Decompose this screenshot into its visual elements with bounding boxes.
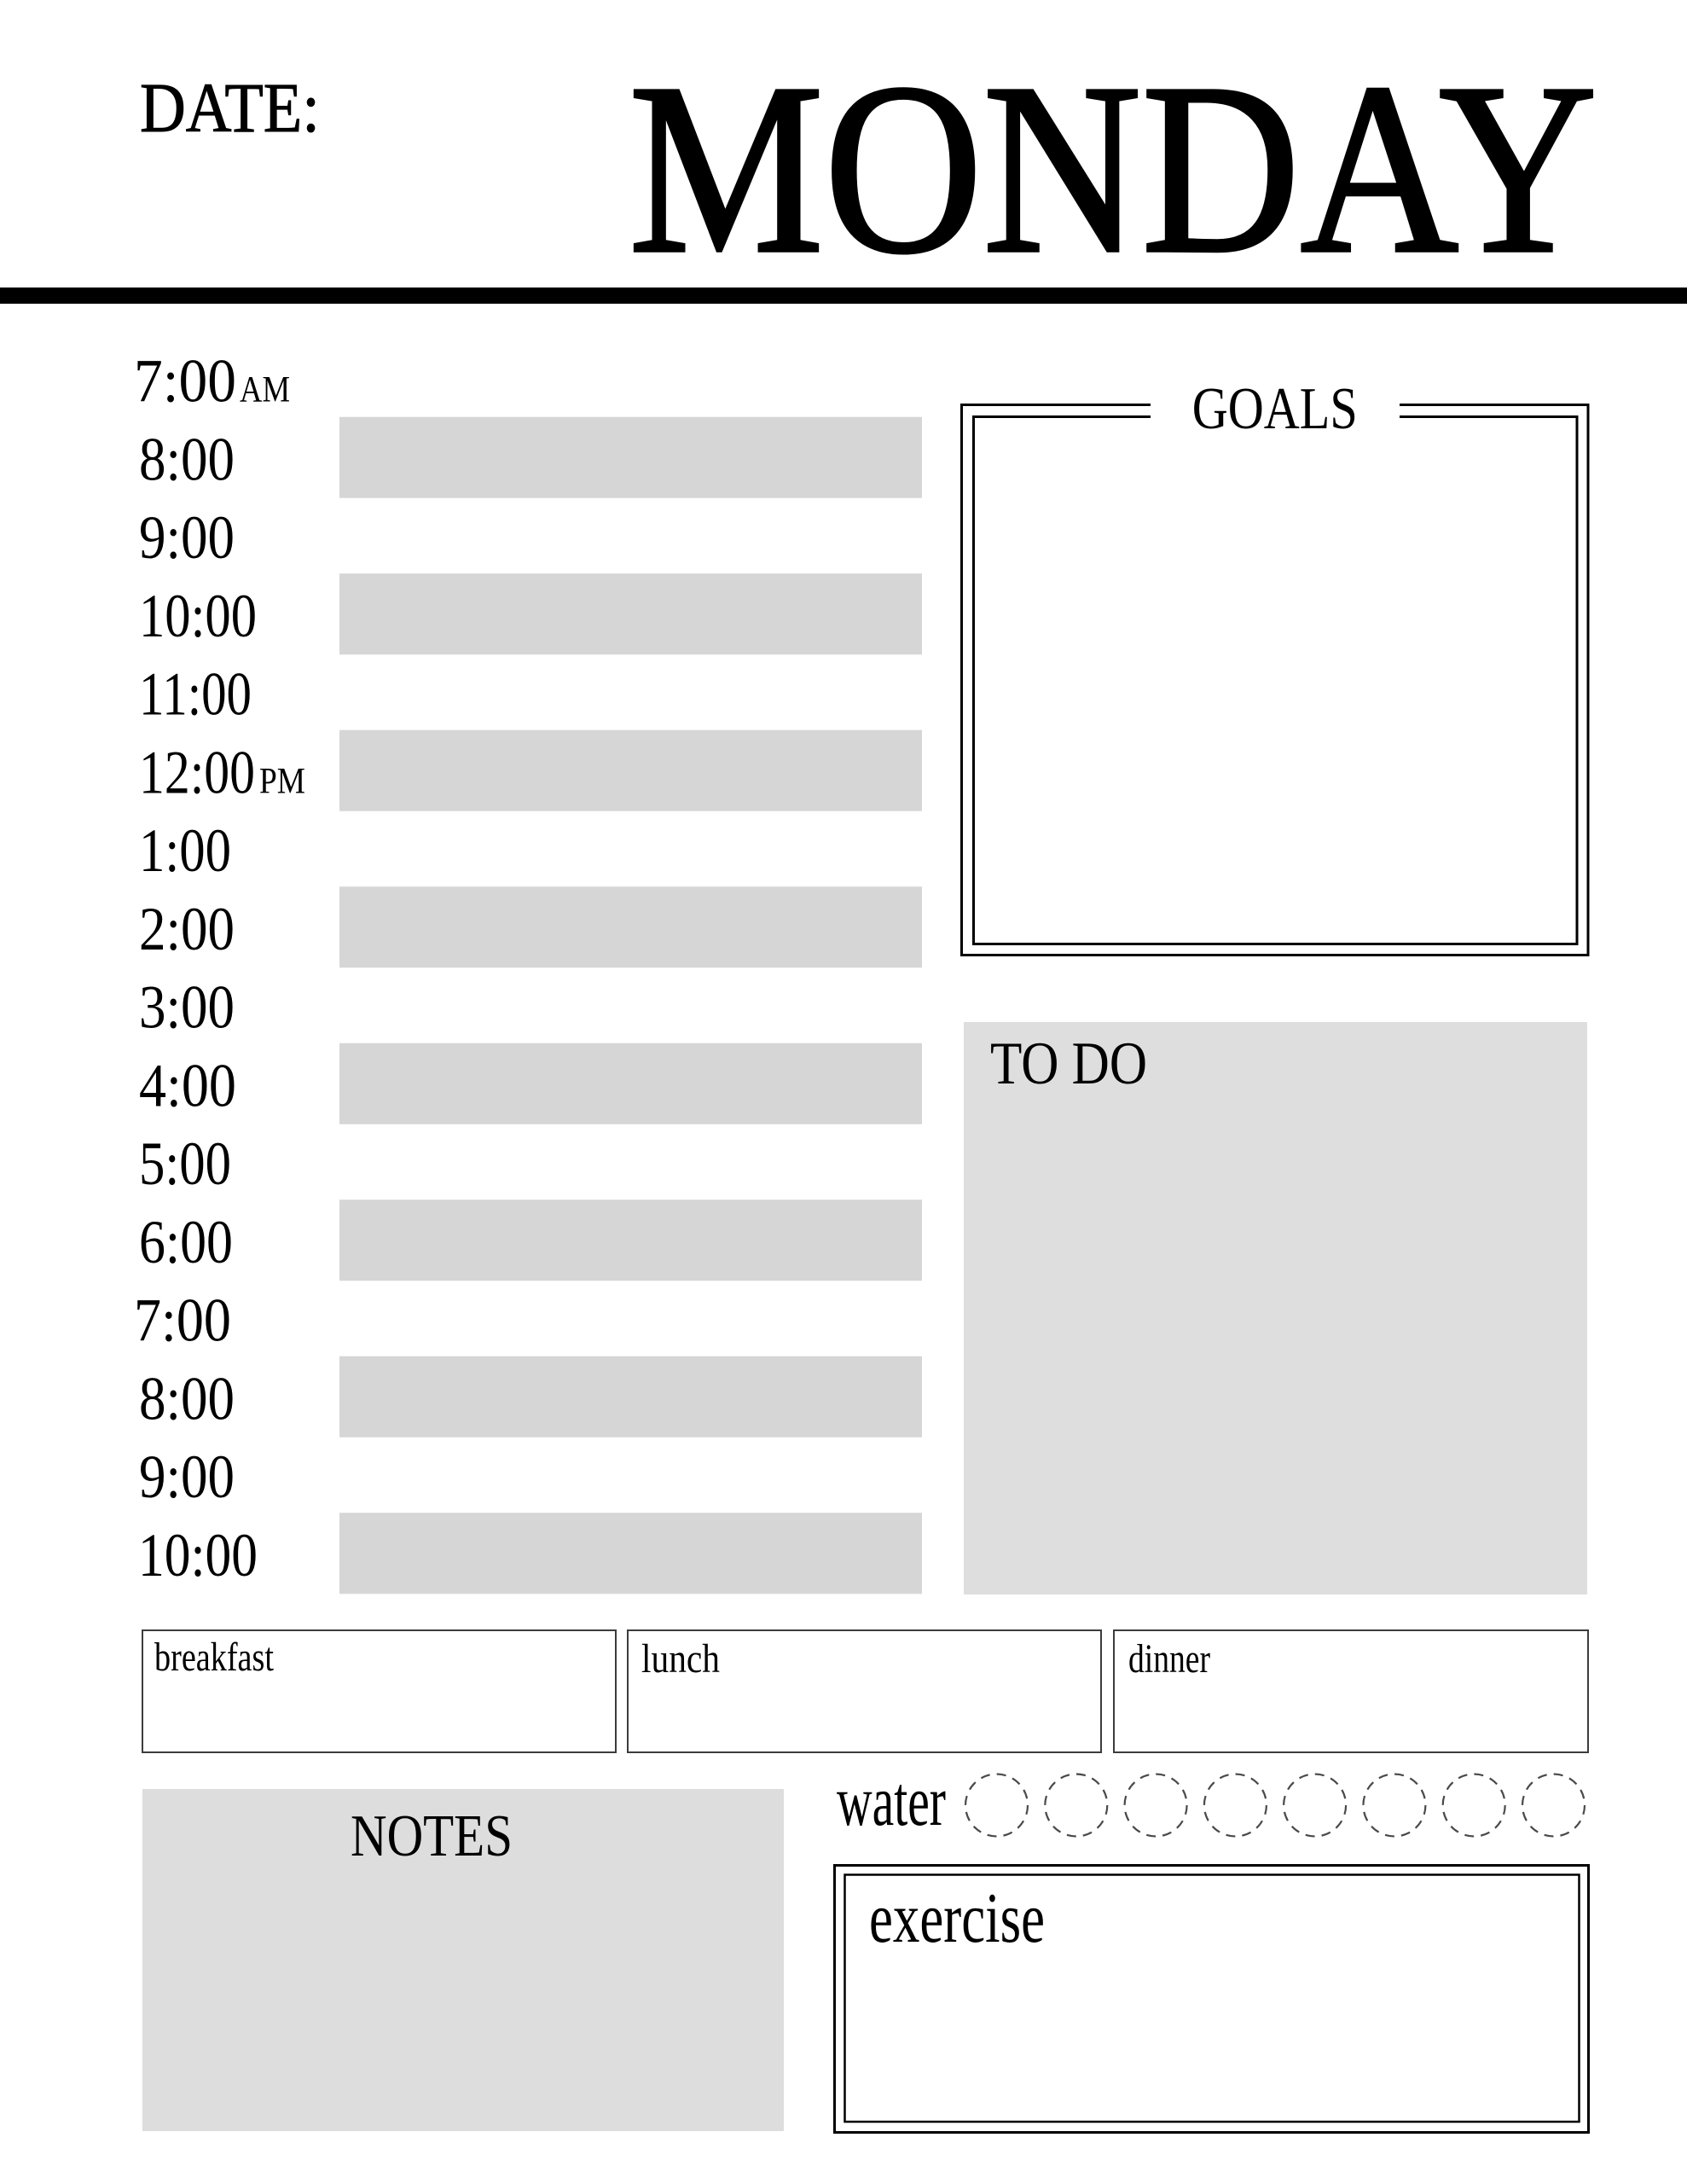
svg-text:8:00: 8:00 bbox=[139, 1364, 235, 1432]
svg-text:7:00: 7:00 bbox=[134, 347, 236, 415]
svg-text:5:00: 5:00 bbox=[139, 1130, 231, 1198]
svg-text:12:00: 12:00 bbox=[139, 738, 255, 806]
svg-text:DATE:: DATE: bbox=[140, 68, 320, 147]
svg-text:PM: PM bbox=[259, 761, 305, 801]
svg-text:TO DO: TO DO bbox=[990, 1031, 1147, 1097]
svg-text:lunch: lunch bbox=[641, 1636, 720, 1682]
svg-text:MONDAY: MONDAY bbox=[629, 33, 1597, 305]
svg-text:dinner: dinner bbox=[1128, 1636, 1210, 1682]
svg-text:4:00: 4:00 bbox=[139, 1051, 236, 1119]
svg-text:NOTES: NOTES bbox=[351, 1804, 513, 1869]
svg-text:3:00: 3:00 bbox=[139, 973, 235, 1042]
svg-text:exercise: exercise bbox=[869, 1879, 1045, 1958]
svg-text:water: water bbox=[837, 1762, 946, 1841]
svg-text:10:00: 10:00 bbox=[138, 1521, 258, 1589]
svg-text:1:00: 1:00 bbox=[139, 816, 231, 885]
svg-text:6:00: 6:00 bbox=[139, 1208, 233, 1276]
svg-text:8:00: 8:00 bbox=[139, 425, 235, 493]
svg-text:GOALS: GOALS bbox=[1192, 376, 1358, 442]
svg-text:10:00: 10:00 bbox=[139, 582, 257, 650]
svg-text:2:00: 2:00 bbox=[139, 895, 235, 963]
svg-text:9:00: 9:00 bbox=[139, 1443, 235, 1511]
svg-text:AM: AM bbox=[240, 370, 290, 410]
svg-text:9:00: 9:00 bbox=[139, 503, 235, 572]
svg-text:breakfast: breakfast bbox=[154, 1635, 275, 1680]
svg-text:7:00: 7:00 bbox=[134, 1287, 231, 1355]
svg-text:11:00: 11:00 bbox=[139, 660, 252, 729]
